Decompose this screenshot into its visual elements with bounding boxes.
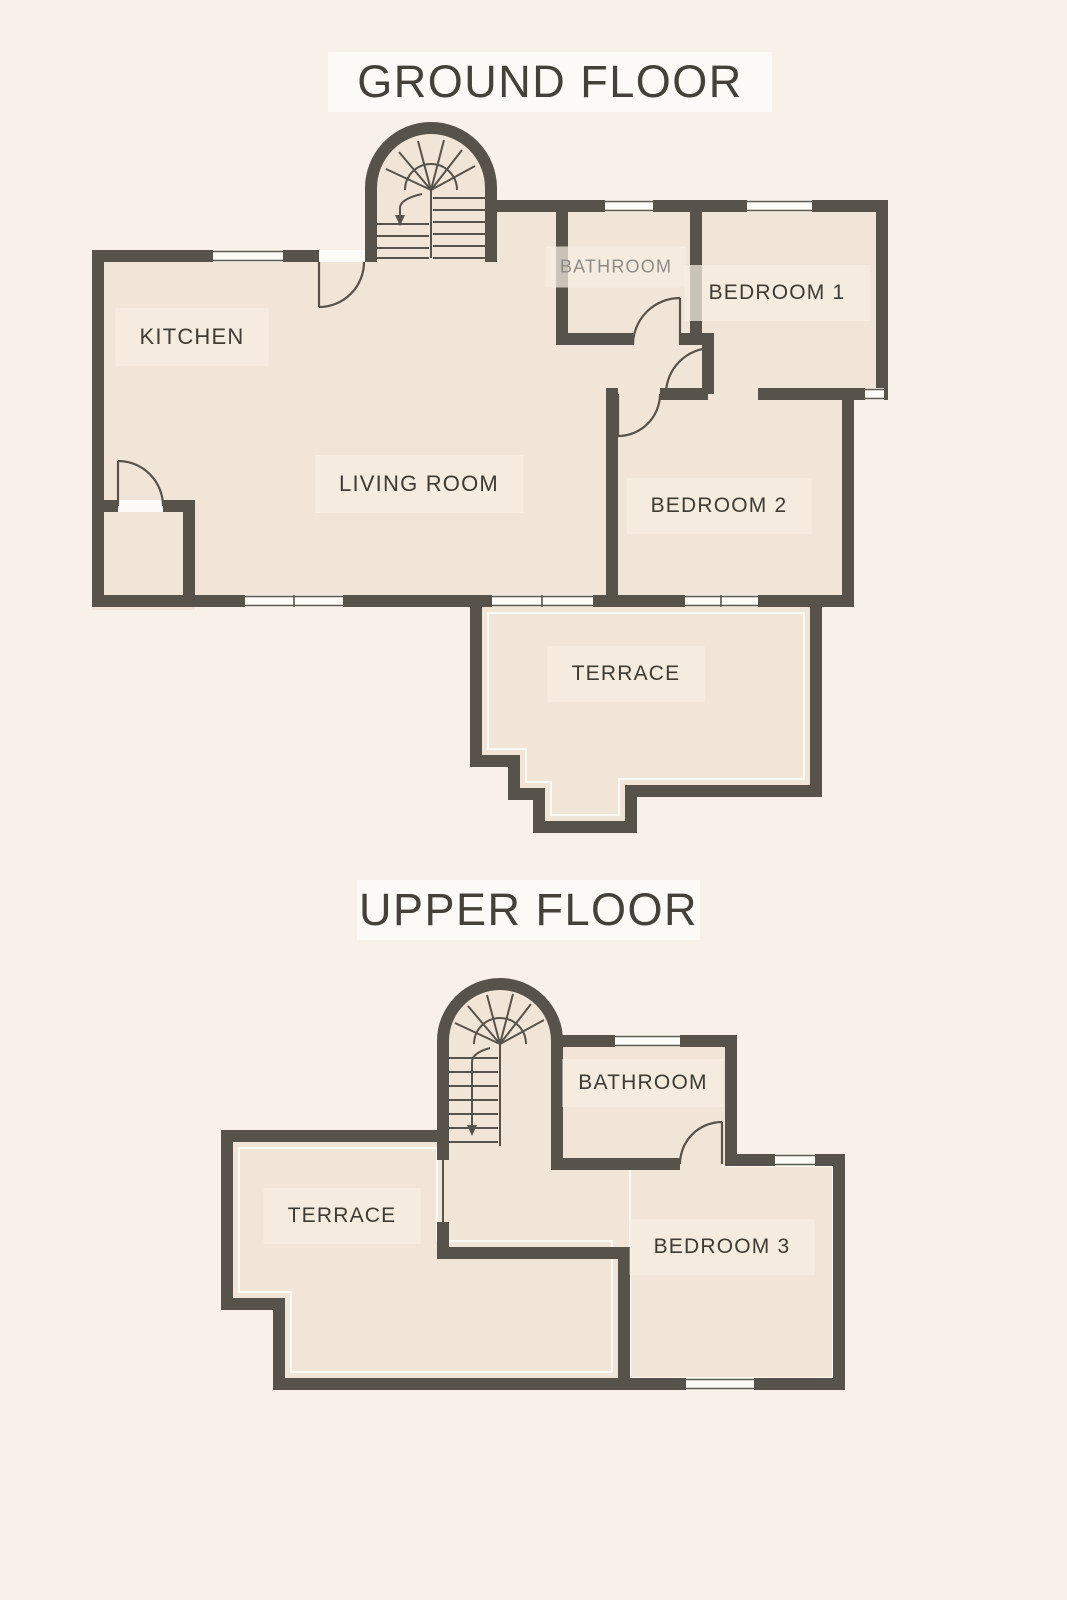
living-room-window-left [245, 595, 343, 607]
upper-floor-fills [227, 984, 845, 1390]
room-label-bathroom-upper: BATHROOM [562, 1059, 723, 1107]
room-label-kitchen: KITCHEN [116, 308, 269, 366]
bedroom1-top-window [747, 200, 812, 212]
bedroom1-side-window [865, 388, 884, 400]
ground-floor-title: GROUND FLOOR [328, 52, 772, 112]
bedroom2-window [685, 595, 758, 607]
room-label-bedroom-1: BEDROOM 1 [685, 265, 870, 321]
room-label-living-room: LIVING ROOM [315, 455, 523, 513]
kitchen-window [213, 250, 283, 262]
bedroom3-bottom-window [686, 1378, 754, 1390]
room-label-terrace-ground: TERRACE [548, 646, 705, 702]
room-label-bathroom-ground: BATHROOM [546, 247, 686, 288]
bathroom-window [605, 200, 653, 212]
bedroom3-top-window [775, 1154, 815, 1166]
upper-floor-title: UPPER FLOOR [357, 880, 700, 940]
room-label-terrace-upper: TERRACE [264, 1188, 421, 1244]
room-label-bedroom-3: BEDROOM 3 [630, 1219, 815, 1275]
floorplan-page: GROUND FLOOR KITCHEN LIVING ROOM BATHROO… [0, 0, 1067, 1600]
room-label-bedroom-2: BEDROOM 2 [627, 478, 812, 534]
upper-bathroom-window [615, 1035, 680, 1047]
living-room-window-terrace [492, 595, 593, 607]
floorplan-drawing [0, 0, 1067, 1600]
upper-floor-plan [221, 984, 845, 1390]
upper-floor-door-openings [680, 1158, 722, 1170]
